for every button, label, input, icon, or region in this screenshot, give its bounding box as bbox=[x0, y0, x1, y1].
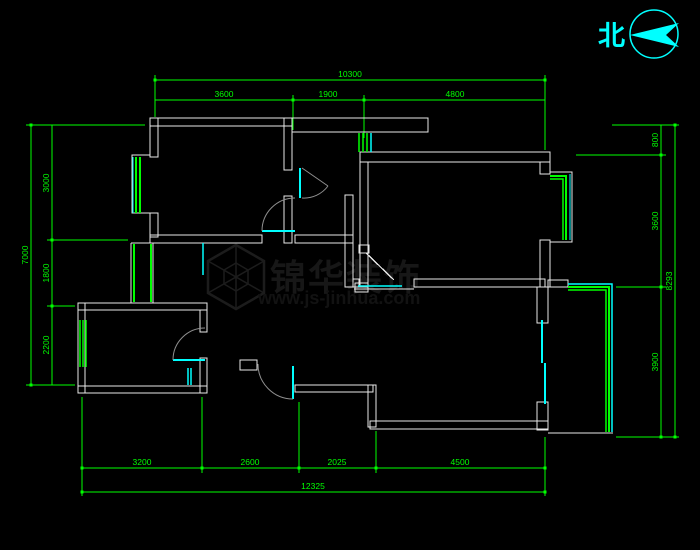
watermark-logo-lines bbox=[208, 245, 264, 309]
wall-room2-right-upper bbox=[540, 162, 550, 174]
north-needle-icon bbox=[630, 23, 679, 47]
wall-corridor-bottom bbox=[295, 235, 353, 243]
wall-room1-left-lower bbox=[150, 213, 158, 237]
window-balcony-inner bbox=[568, 290, 606, 432]
wall-room1-bottom bbox=[150, 235, 262, 243]
wall-room3-bottom bbox=[78, 386, 207, 393]
dim-bottom-seg1: 3200 bbox=[133, 457, 152, 467]
wall-bay2-outline bbox=[550, 172, 572, 242]
wall-east-upper bbox=[537, 287, 548, 323]
dim-left-overall: 7000 bbox=[20, 245, 30, 264]
door-hall-swing-arc bbox=[302, 168, 328, 198]
dim-bottom-seg2: 2600 bbox=[241, 457, 260, 467]
watermark: 锦华装饰 www.js-jinhua.com bbox=[208, 245, 422, 309]
wall-corridor-top bbox=[292, 118, 428, 132]
wall-room1-left-upper bbox=[150, 118, 158, 157]
wall-balcony-top bbox=[548, 280, 568, 287]
dimensions-top: 10300 3600 1900 4800 bbox=[154, 69, 547, 150]
floorplan-canvas[interactable]: 10300 3600 1900 4800 7000 3000 1800 2200… bbox=[0, 0, 700, 550]
dim-left-seg3: 2200 bbox=[41, 335, 51, 354]
door-room3-swing-arc bbox=[173, 328, 205, 360]
wall-bottom-west bbox=[295, 385, 373, 392]
window-top-middle bbox=[359, 133, 367, 152]
window-bay1-glazing bbox=[136, 157, 140, 213]
dimensions-right: 800 3600 3900 8293 bbox=[576, 124, 679, 439]
walls bbox=[78, 118, 613, 433]
window-bay2-glazing-inner bbox=[550, 179, 563, 240]
dim-bottom-seg3: 2025 bbox=[328, 457, 347, 467]
wall-room3-left bbox=[78, 303, 85, 393]
dim-top-seg3: 4800 bbox=[446, 89, 465, 99]
door-kitchen-swing-arc bbox=[258, 364, 293, 399]
dim-bottom-overall: 12325 bbox=[301, 481, 325, 491]
dim-left-seg1: 3000 bbox=[41, 173, 51, 192]
wall-room2-bottom-east bbox=[414, 279, 545, 287]
dim-right-seg3: 3900 bbox=[650, 352, 660, 371]
window-balcony-outer bbox=[568, 287, 609, 432]
cad-viewport[interactable]: 10300 3600 1900 4800 7000 3000 1800 2200… bbox=[0, 0, 700, 550]
door-balcony-sliding bbox=[542, 320, 545, 404]
window-living-west bbox=[134, 244, 151, 302]
dim-right-seg1: 800 bbox=[650, 133, 660, 147]
dim-right-seg2: 3600 bbox=[650, 211, 660, 230]
dim-top-seg1: 3600 bbox=[215, 89, 234, 99]
wall-room1-right-lower bbox=[284, 196, 292, 243]
dim-top-overall: 10300 bbox=[338, 69, 362, 79]
dimensions-bottom: 3200 2600 2025 4500 12325 bbox=[81, 397, 547, 496]
wall-room3-top bbox=[78, 303, 207, 310]
wall-bottom-east bbox=[370, 421, 548, 429]
north-indicator: 北 bbox=[598, 10, 679, 58]
wall-kitchen-stub bbox=[240, 360, 257, 370]
dim-right-overall: 8293 bbox=[664, 271, 674, 290]
wall-room1-top bbox=[150, 118, 292, 126]
wall-room2-top bbox=[360, 152, 550, 162]
door-room3-small-mark bbox=[188, 368, 191, 385]
wall-room3-right-lower bbox=[200, 358, 207, 393]
door-room1-swing-arc bbox=[262, 198, 295, 231]
dim-left-seg2: 1800 bbox=[41, 263, 51, 282]
dim-bottom-seg4: 4500 bbox=[451, 457, 470, 467]
wall-east-lower bbox=[537, 402, 548, 430]
north-label: 北 bbox=[598, 21, 625, 51]
dim-top-seg2: 1900 bbox=[319, 89, 338, 99]
watermark-url: www.js-jinhua.com bbox=[257, 288, 420, 308]
